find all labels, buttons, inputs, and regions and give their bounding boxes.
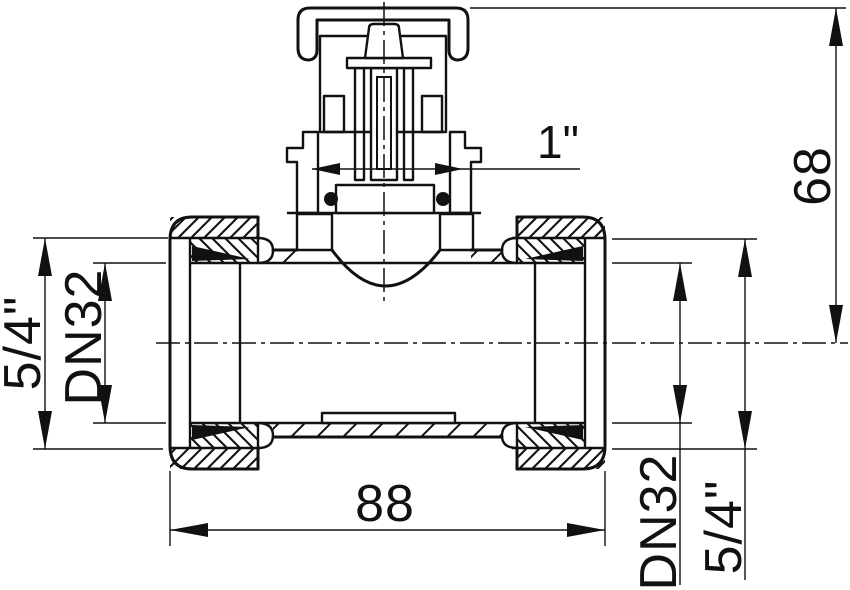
dim-left-bore-label: DN32 (55, 269, 113, 406)
stem-flange (347, 58, 431, 68)
valve-cross-section-drawing: 1" 68 5/4" DN32 88 DN32 5/ (0, 0, 850, 590)
gland-insert (336, 185, 434, 213)
dim-right-bore-label: DN32 (630, 454, 688, 590)
bottom-pad (322, 413, 455, 423)
o-ring-left (324, 192, 338, 206)
dim-right-thread-label: 5/4" (695, 480, 753, 575)
dim-left-thread-label: 5/4" (0, 296, 52, 391)
dim-overall-length-label: 88 (355, 475, 415, 533)
dim-valve-thread-label: 1" (537, 116, 579, 168)
o-ring-right (436, 192, 450, 206)
technical-drawing-page: 1" 68 5/4" DN32 88 DN32 5/ (0, 0, 850, 590)
dim-overall-height-label: 68 (784, 146, 842, 206)
